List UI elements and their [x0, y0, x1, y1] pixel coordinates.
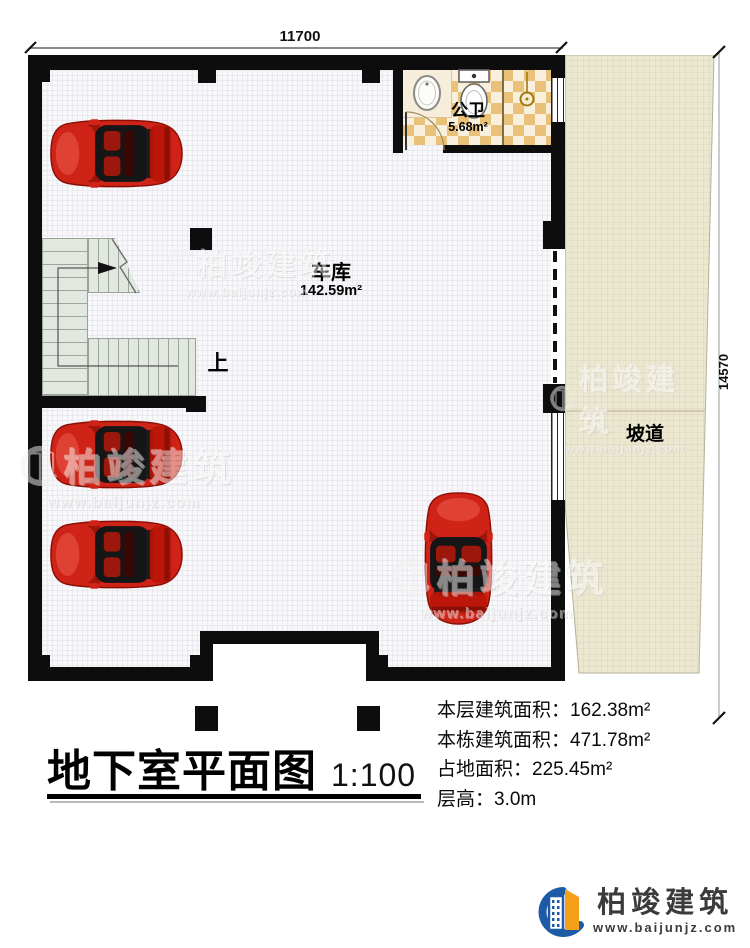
stat-row: 占地面积：225.45m²: [437, 755, 650, 785]
bathroom-wall-bottom: [443, 145, 551, 153]
area-stats: 本层建筑面积：162.38m² 本栋建筑面积：471.78m² 占地面积：225…: [437, 696, 650, 814]
stat-value: 162.38m²: [570, 700, 650, 721]
garage-area: 142.59m²: [266, 284, 396, 300]
stat-label: 本栋建筑面积：: [437, 730, 570, 751]
title-text: 地下室平面图: [47, 750, 317, 794]
pilaster: [42, 655, 50, 667]
stat-row: 层高：3.0m: [437, 785, 650, 815]
car: [424, 490, 493, 627]
garage-opening: [551, 249, 565, 384]
car: [48, 420, 185, 489]
garage-door: [551, 413, 565, 500]
stat-value: 225.45m²: [532, 759, 612, 780]
stat-row: 本层建筑面积：162.38m²: [437, 696, 650, 726]
brand-logo-icon: [528, 884, 586, 938]
recess-wall-left: [200, 631, 213, 681]
pilaster: [198, 70, 216, 83]
dimension-height-label: 14570: [716, 342, 732, 402]
bathroom-label: 公卫 5.68m²: [408, 102, 528, 134]
drawing-title: 地下室平面图 1:100: [47, 750, 416, 794]
pilaster: [543, 384, 565, 413]
ramp-label: 坡道: [595, 425, 695, 446]
car: [48, 520, 185, 589]
dimension-width-label: 11700: [200, 28, 400, 45]
stairs-up-label: 上: [200, 352, 236, 375]
brand-url: www.baijunjz.com: [593, 920, 737, 935]
stairs-lower-flight: [88, 338, 196, 396]
entry-recess: [213, 644, 366, 686]
ramp-area: [560, 55, 718, 675]
bathroom-area: 5.68m²: [408, 121, 528, 135]
title-underline-light: [50, 801, 424, 803]
bathroom-name: 公卫: [408, 102, 528, 121]
brand-name: 柏竣建筑: [597, 888, 733, 918]
stair-wall: [42, 396, 190, 408]
recess-wall-top: [200, 631, 379, 644]
bathroom-wall-left: [393, 70, 403, 153]
pilaster: [42, 58, 50, 82]
stat-label: 层高：: [437, 789, 494, 810]
stat-label: 占地面积：: [437, 759, 532, 780]
stat-label: 本层建筑面积：: [437, 700, 570, 721]
wall-left: [28, 55, 42, 681]
pilaster: [362, 70, 380, 83]
column-marker: [195, 706, 218, 731]
ramp-name: 坡道: [595, 425, 695, 446]
title-underline: [47, 794, 421, 799]
title-scale: 1:100: [331, 757, 416, 794]
car: [48, 119, 185, 188]
pilaster: [379, 655, 388, 667]
stair-column: [190, 228, 212, 250]
garage-label: 车库 142.59m²: [266, 262, 396, 300]
stat-value: 471.78m²: [570, 730, 650, 751]
wall-top: [28, 55, 565, 70]
floor-plan-page: 11700 14570 坡道 上 公卫 5.68m² 车库 142.59m²: [0, 0, 750, 948]
column-marker: [357, 706, 380, 731]
bathroom-window: [551, 78, 565, 122]
stairs-landing-flight: [42, 238, 88, 396]
pilaster: [186, 396, 206, 412]
brand-logo: 柏竣建筑 www.baijunjz.com: [528, 884, 737, 938]
stat-value: 3.0m: [494, 789, 536, 810]
garage-name: 车库: [266, 262, 396, 284]
recess-wall-right: [366, 631, 379, 681]
pilaster: [543, 221, 565, 249]
pilaster: [190, 655, 200, 667]
stat-row: 本栋建筑面积：471.78m²: [437, 726, 650, 756]
